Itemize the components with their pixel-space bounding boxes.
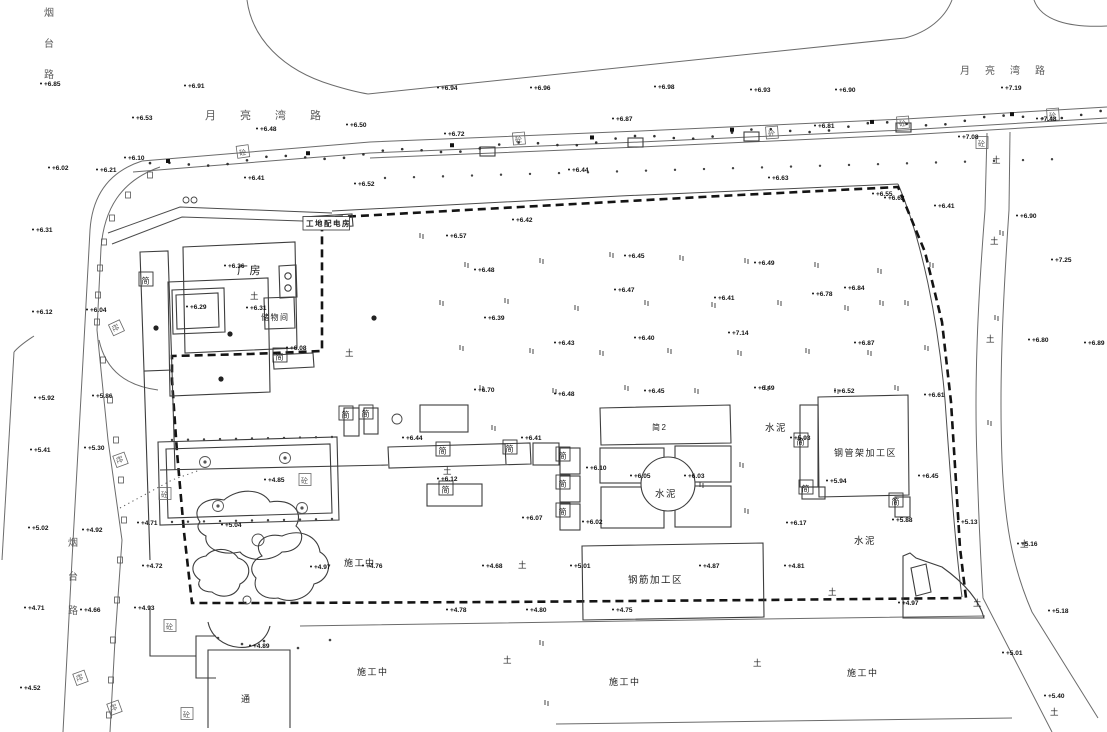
elevation-dot-25 (86, 309, 88, 311)
pond-blob-a (197, 491, 302, 559)
elevation-dot-2 (437, 87, 439, 89)
band-dot (556, 144, 559, 147)
soil-mark-2: 土 (443, 466, 452, 476)
lamp-square-1 (306, 151, 310, 155)
elevation-dot-62 (224, 265, 226, 267)
elevation-value-33: +4.66 (84, 607, 101, 614)
band-dot (770, 128, 773, 131)
band-dot (401, 148, 404, 151)
elevation-dot-61 (924, 394, 926, 396)
garden-dot (219, 520, 221, 522)
concrete-box-9: 砼 (107, 700, 122, 715)
elevation-dot-49 (484, 317, 486, 319)
elevation-value-49: +6.39 (488, 315, 505, 322)
elevation-value-6: +6.90 (839, 87, 856, 94)
garden-dot (299, 436, 301, 438)
elevation-dot-47 (1016, 215, 1018, 217)
small-circle-2 (392, 414, 402, 424)
strip-dot (442, 175, 444, 177)
shed-box-label-12: 简 (276, 352, 284, 362)
far-left-corner-curve (14, 336, 34, 352)
concrete-box-6: 砼 (108, 320, 124, 336)
elevation-dot-40 (754, 262, 756, 264)
elevation-dot-95 (1017, 543, 1019, 545)
elevation-value-57: +6.48 (558, 391, 575, 398)
elevation-value-60: +6.52 (838, 388, 855, 395)
elevation-dot-71 (437, 478, 439, 480)
elevation-value-63: +6.31 (250, 305, 267, 312)
elevation-dot-70 (684, 475, 686, 477)
elevation-value-96: +5.18 (1052, 608, 1069, 615)
elevation-value-94: +5.13 (961, 519, 978, 526)
elevation-value-20: +6.52 (358, 181, 375, 188)
concrete-box-label-0: 砼 (238, 148, 246, 158)
elevation-value-68: +6.10 (590, 465, 607, 472)
band-dot (479, 147, 482, 150)
shed-box-label-11: 简 (442, 485, 450, 495)
elevation-value-97: +5.01 (1006, 650, 1023, 657)
elevation-value-24: +6.31 (36, 227, 53, 234)
grass-mark-27 (625, 385, 628, 391)
tree-dot-icon-0 (227, 331, 232, 336)
elevation-value-78: +6.17 (790, 520, 807, 527)
elevation-value-62: +6.36 (228, 263, 245, 270)
elevation-dot-82 (310, 566, 312, 568)
left-road-name-top-char-2: 路 (44, 68, 54, 81)
small-circle-0 (183, 197, 189, 203)
elevation-dot-90 (446, 609, 448, 611)
elevation-dot-50 (554, 342, 556, 344)
band-dot (944, 123, 947, 126)
grass-mark-11 (575, 305, 578, 311)
path-dot (241, 643, 244, 646)
strip-dot (500, 174, 502, 176)
concrete-box-12: 砼 (299, 474, 311, 486)
elevation-value-0: +6.85 (44, 81, 61, 88)
shed-box-label-5: 简 (559, 451, 567, 461)
path-dot (263, 640, 266, 643)
elevation-value-66: +6.44 (406, 435, 423, 442)
elevation-value-92: +4.75 (616, 607, 633, 614)
grass-mark-32 (492, 425, 495, 431)
grass-mark-12 (645, 300, 648, 306)
elevation-dot-86 (482, 565, 484, 567)
band-dot (343, 157, 346, 160)
passage-label: 通 (241, 694, 252, 704)
band-dot (867, 122, 870, 125)
elevation-dot-74 (790, 437, 792, 439)
strip-dot (732, 167, 734, 169)
grass-mark-15 (845, 305, 848, 311)
shed-box-label-6: 简 (559, 479, 567, 489)
band-dot (925, 124, 928, 127)
door-circle-1 (285, 273, 291, 279)
elevation-value-99: +4.97 (902, 600, 919, 607)
strip-dot (1051, 158, 1053, 160)
elevation-value-84: +4.89 (253, 643, 270, 650)
grass-mark-1 (465, 262, 468, 268)
strip-dot (674, 169, 676, 171)
elevation-dot-54 (1028, 339, 1030, 341)
inner-shed (427, 484, 482, 506)
elevation-dot-22 (768, 177, 770, 179)
elevation-value-46: +6.41 (938, 203, 955, 210)
elevation-value-42: +6.47 (618, 287, 635, 294)
elevation-value-90: +4.78 (450, 607, 467, 614)
elevation-value-83: +4.93 (138, 605, 155, 612)
elevation-dot-17 (96, 169, 98, 171)
grass-mark-2 (540, 258, 543, 264)
elevation-dot-42 (614, 289, 616, 291)
band-dot (207, 164, 210, 167)
right-drive-east (1009, 132, 1010, 210)
fence-tick-10 (119, 477, 124, 483)
northwest-wedge-b (112, 217, 332, 244)
elevation-value-64: +6.29 (190, 304, 207, 311)
elevation-dot-87 (570, 565, 572, 567)
shed-box-label-1: 简 (342, 410, 350, 420)
elevation-value-76: +6.45 (922, 473, 939, 480)
bottom-edge-line (556, 718, 1012, 724)
elevation-value-32: +5.02 (32, 525, 49, 532)
top-road-name-east-char-3: 路 (1035, 64, 1045, 77)
elevation-value-22: +6.63 (772, 175, 789, 182)
garden-dot (235, 438, 237, 440)
soil-mark-4: 土 (503, 655, 512, 665)
elevation-dot-36 (512, 219, 514, 221)
band-dot (459, 150, 462, 153)
band-dot (692, 137, 695, 140)
soil-mark-1: 土 (345, 348, 354, 358)
garden-dot (187, 439, 189, 441)
far-left-edge (2, 352, 14, 560)
shed-box-label-0: 简 (142, 276, 150, 286)
elevation-dot-21 (568, 169, 570, 171)
garden-dot (331, 518, 333, 520)
under-construction-label-2: 施工中 (357, 666, 389, 677)
elevation-dot-18 (48, 167, 50, 169)
elevation-dot-73 (582, 521, 584, 523)
elevation-dot-69 (630, 475, 632, 477)
elevation-value-17: +6.21 (100, 167, 117, 174)
band-dot (362, 153, 365, 156)
band-dot (808, 131, 811, 134)
elevation-value-7: +7.19 (1005, 85, 1022, 92)
grass-mark-28 (695, 388, 698, 394)
band-dot (382, 149, 385, 152)
elevation-dot-14 (958, 136, 960, 138)
elevation-dot-84 (249, 645, 251, 647)
elevation-value-2: +6.94 (441, 85, 458, 92)
lamp-square-2 (450, 143, 454, 147)
concrete-box-label-12: 砼 (301, 476, 308, 485)
site-office-label: 工地配电房 (306, 218, 351, 228)
soil-mark-0: 土 (250, 291, 259, 301)
strip-dot (384, 177, 386, 179)
elevation-value-53: +6.87 (858, 340, 875, 347)
elevation-value-89: +4.81 (788, 563, 805, 570)
elevation-value-61: +6.61 (928, 392, 945, 399)
top-road-name-west-char-2: 湾 (275, 108, 286, 122)
grass-mark-33 (740, 462, 743, 468)
band-dot (285, 155, 288, 158)
elevation-dot-98 (1044, 695, 1046, 697)
grass-mark-18 (530, 348, 533, 354)
shed-box-label-4: 简 (506, 444, 514, 454)
garden-dot (267, 519, 269, 521)
left-road-branch-curve (99, 340, 158, 390)
door-circle-2 (285, 285, 291, 291)
under-construction-label-4: 施工中 (847, 667, 879, 678)
grass-mark-23 (868, 350, 871, 356)
garden-dot (315, 518, 317, 520)
band-dot (634, 135, 637, 138)
garden-dot (235, 520, 237, 522)
soil-mark-9: 土 (986, 334, 995, 344)
elevation-value-25: +6.04 (90, 307, 107, 314)
elevation-dot-33 (80, 609, 82, 611)
elevation-value-88: +4.87 (703, 563, 720, 570)
band-dot (750, 128, 753, 131)
band-dot (1080, 114, 1083, 117)
band-dot (265, 155, 268, 158)
top-road-name-west-char-3: 路 (310, 109, 321, 122)
elevation-value-65: +6.08 (290, 345, 307, 352)
elevation-dot-65 (286, 347, 288, 349)
band-dot (188, 163, 191, 166)
passage-building (208, 650, 290, 728)
band-dot (1099, 110, 1102, 113)
band-dot (517, 141, 520, 144)
elevation-dot-6 (835, 89, 837, 91)
elevation-dot-59 (754, 387, 756, 389)
band-dot (983, 116, 986, 119)
elevation-value-37: +6.57 (450, 233, 467, 240)
elevation-dot-57 (554, 393, 556, 395)
left-road-name-mid-char-0: 烟 (68, 536, 78, 549)
elevation-dot-60 (834, 390, 836, 392)
elevation-value-26: +6.12 (36, 309, 53, 316)
grass-mark-40 (540, 640, 543, 646)
buildings (120, 123, 984, 728)
elevation-dot-68 (586, 467, 588, 469)
tree-icon-center-0 (203, 460, 206, 463)
elevation-dot-26 (32, 311, 34, 313)
elevation-value-75: +5.94 (830, 478, 847, 485)
elevation-value-72: +6.07 (526, 515, 543, 522)
band-dot (886, 121, 889, 124)
mid-strip-annex (533, 443, 559, 465)
grass-mark-9 (440, 300, 443, 306)
path-dot (217, 637, 220, 640)
strip-dot (935, 161, 937, 163)
tree-icon-center-1 (283, 456, 286, 459)
elevation-value-29: +5.30 (88, 445, 105, 452)
strip-dot (906, 162, 908, 164)
generated-annotations: 月亮湾路月亮湾路烟台路烟台路厂房储物间工地配电房简2水泥水泥水泥钢管架加工区钢筋… (20, 6, 1105, 720)
grass-mark-7 (878, 268, 881, 274)
elevation-value-48: +7.25 (1055, 257, 1072, 264)
elevation-value-77: +5.88 (896, 517, 913, 524)
elevation-dot-9 (256, 128, 258, 130)
fence-tick-13 (115, 597, 120, 603)
soil-mark-5: 土 (753, 658, 762, 668)
shed-box-label-10: 简 (892, 497, 900, 507)
elevation-dot-1 (184, 85, 186, 87)
elevation-value-80: +4.71 (141, 520, 158, 527)
elevation-value-98: +5.40 (1048, 693, 1065, 700)
grass-mark-35 (745, 508, 748, 514)
elevation-value-4: +6.98 (658, 84, 675, 91)
lamp-square-5 (870, 120, 874, 124)
tree-dot-icon-2 (371, 315, 376, 320)
west-strip-building (140, 251, 172, 371)
strip-dot (616, 170, 618, 172)
elevation-value-18: +6.02 (52, 165, 69, 172)
grass-mark-3 (610, 252, 613, 258)
grass-mark-0 (420, 233, 423, 239)
band-dot (576, 144, 579, 147)
right-drive-west (985, 133, 987, 210)
elevation-dot-64 (186, 306, 188, 308)
north-inner-fence (332, 184, 898, 211)
yard-top-line (160, 465, 388, 470)
strip-dot (703, 168, 705, 170)
top-left-road-curve (247, 0, 368, 94)
elevation-value-14: +7.08 (962, 134, 979, 141)
cement-label-center: 水泥 (655, 488, 677, 500)
garden-dot (203, 438, 205, 440)
elevation-dot-34 (24, 607, 26, 609)
elevation-value-81: +5.04 (225, 522, 242, 529)
elevation-value-91: +4.80 (530, 607, 547, 614)
garden-dot (187, 521, 189, 523)
elevation-dot-37 (446, 235, 448, 237)
concrete-box-8: 砼 (73, 670, 88, 685)
elevation-dot-23 (872, 193, 874, 195)
grass-mark-24 (925, 345, 928, 351)
band-dot (323, 158, 326, 161)
cement-label-bottom: 水泥 (854, 535, 876, 547)
soil-mark-8: 土 (990, 236, 999, 246)
under-construction-label-3: 施工中 (609, 676, 641, 687)
shed-box-label-9: 简 (802, 484, 810, 494)
garden-dot (331, 436, 333, 438)
elevation-value-13: +6.81 (818, 123, 835, 130)
top-road-name-west-char-1: 亮 (240, 108, 251, 122)
elevation-dot-32 (28, 527, 30, 529)
elevation-dot-83 (134, 607, 136, 609)
garden-dot (251, 437, 253, 439)
garden-dot (315, 436, 317, 438)
soil-mark-10: 土 (973, 598, 982, 608)
elevation-value-16: +6.10 (128, 155, 145, 162)
elevation-value-93: +4.72 (146, 563, 163, 570)
elevation-value-10: +6.50 (350, 122, 367, 129)
lamp-square-6 (1010, 112, 1014, 116)
elevation-value-40: +6.49 (758, 260, 775, 267)
band-dot (304, 156, 307, 159)
lamp-square-4 (730, 128, 734, 132)
top-right-curve-east (1034, 0, 1107, 26)
elevation-value-21: +6.44 (572, 167, 589, 174)
elevation-dot-67 (521, 437, 523, 439)
top-right-curve-west (905, 0, 952, 38)
elevation-dot-43 (714, 297, 716, 299)
left-road-name-mid-char-2: 路 (68, 604, 78, 617)
elevation-dot-80 (137, 522, 139, 524)
steel-pipe-area-label: 钢管架加工区 (834, 447, 897, 458)
grass-mark-37 (1000, 230, 1003, 236)
elevation-dot-93 (142, 565, 144, 567)
elevation-value-71: +6.12 (441, 476, 458, 483)
right-wavy-road-east (1001, 210, 1098, 718)
fence-tick-11 (122, 517, 127, 523)
left-road-name-top-char-1: 台 (44, 37, 54, 50)
cement-label-right: 水泥 (765, 422, 787, 434)
band-dot (537, 142, 540, 145)
elevation-dot-85 (362, 565, 364, 567)
band-dot (226, 163, 229, 166)
band-dot (1041, 117, 1044, 120)
elevation-dot-99 (898, 602, 900, 604)
southeast-wedge (903, 553, 984, 618)
band-dot (1022, 115, 1025, 118)
elevation-dot-75 (826, 480, 828, 482)
elevation-value-50: +6.43 (558, 340, 575, 347)
elevation-dot-52 (728, 332, 730, 334)
band-dot (828, 129, 831, 132)
east-inner-fence (898, 184, 962, 597)
elevation-value-87: +5.01 (574, 563, 591, 570)
site-fence-lines (108, 184, 962, 597)
elevation-dot-29 (84, 447, 86, 449)
elevation-dot-63 (246, 307, 248, 309)
elevation-value-70: +6.03 (688, 473, 705, 480)
garden-dot (251, 519, 253, 521)
elevation-value-45: +6.62 (888, 195, 905, 202)
grass-mark-22 (806, 348, 809, 354)
elevation-dot-13 (814, 125, 816, 127)
strip-dot (471, 174, 473, 176)
elevation-dot-35 (20, 687, 22, 689)
band-dot (595, 141, 598, 144)
left-road-name-mid-char-1: 台 (68, 570, 78, 583)
elevation-dot-3 (530, 87, 532, 89)
grass-mark-41 (880, 300, 883, 306)
shed2-label: 简2 (652, 422, 667, 432)
tree-icon-center-2 (216, 504, 219, 507)
band-dot (964, 119, 967, 122)
small-circle-1 (191, 197, 197, 203)
band-dot (905, 123, 908, 126)
elevation-dot-96 (1048, 610, 1050, 612)
band-dot (847, 125, 850, 128)
elevation-value-95: +5.16 (1021, 541, 1038, 548)
elevation-dot-94 (957, 521, 959, 523)
grass-mark-10 (505, 298, 508, 304)
elevation-value-38: +6.48 (478, 267, 495, 274)
elevation-dot-30 (30, 449, 32, 451)
bottom-left-steps (150, 606, 216, 678)
elevation-value-58: +6.45 (648, 388, 665, 395)
garden-dot (299, 518, 301, 520)
elevation-value-69: +6.05 (634, 473, 651, 480)
path-dot (329, 639, 332, 642)
shed-box-label-3: 简 (439, 446, 447, 456)
elevation-dot-45 (884, 197, 886, 199)
elevation-dot-77 (892, 519, 894, 521)
